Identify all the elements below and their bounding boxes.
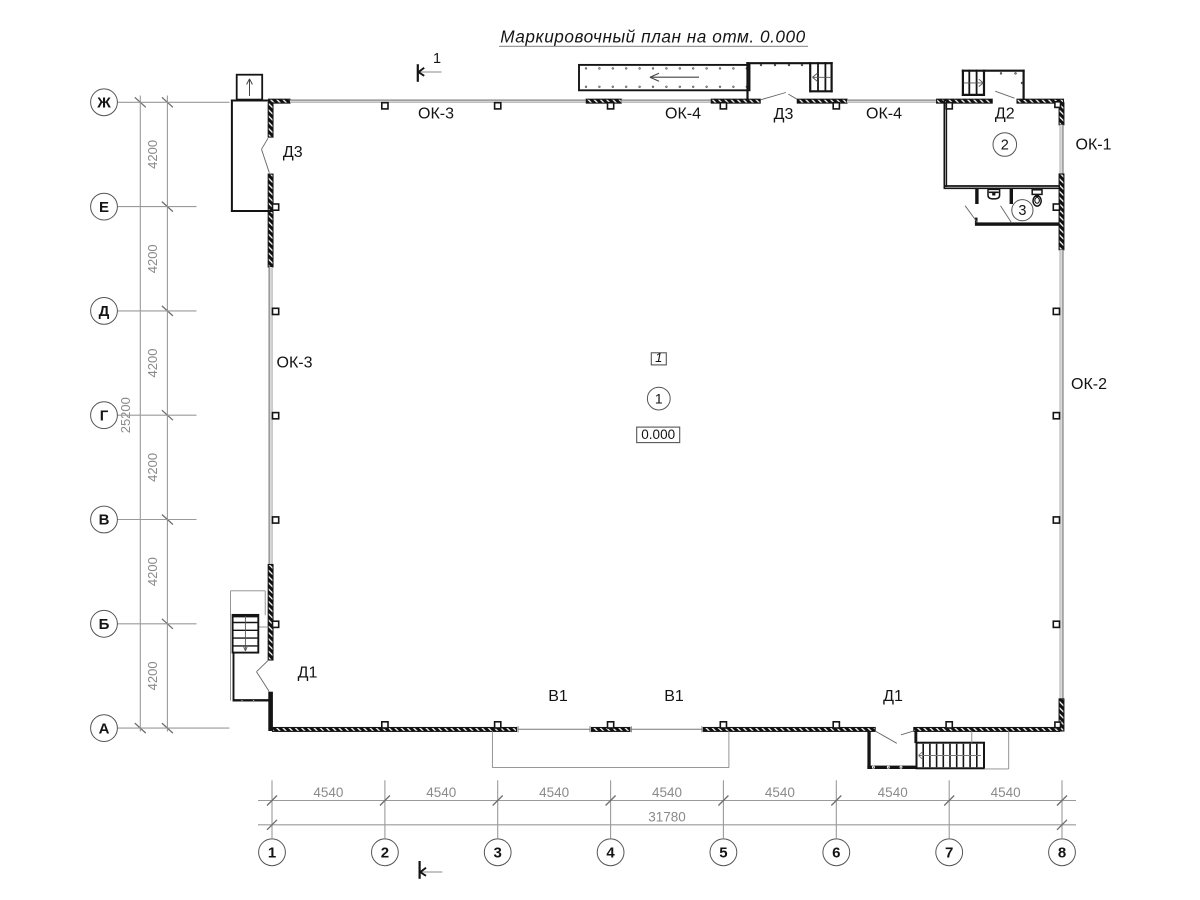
svg-text:Д3: Д3 (774, 106, 794, 123)
svg-text:7: 7 (945, 845, 953, 862)
svg-text:1: 1 (655, 391, 663, 407)
svg-text:А: А (99, 720, 110, 737)
svg-text:ОК-4: ОК-4 (866, 106, 902, 123)
svg-text:В1: В1 (548, 688, 568, 705)
svg-text:4540: 4540 (539, 785, 569, 800)
svg-text:0.000: 0.000 (641, 427, 675, 442)
svg-text:4200: 4200 (145, 244, 160, 273)
svg-text:4540: 4540 (991, 785, 1021, 800)
svg-text:3: 3 (1018, 203, 1026, 219)
svg-text:3: 3 (494, 845, 502, 862)
svg-text:ОК-4: ОК-4 (665, 106, 701, 123)
svg-text:ОК-3: ОК-3 (277, 355, 313, 372)
svg-text:4200: 4200 (145, 140, 160, 169)
svg-text:5: 5 (719, 845, 727, 862)
svg-text:4: 4 (606, 845, 615, 862)
svg-text:31780: 31780 (648, 809, 686, 824)
svg-text:6: 6 (832, 845, 840, 862)
svg-text:4540: 4540 (426, 785, 456, 800)
svg-text:Б: Б (99, 616, 110, 633)
svg-text:Д1: Д1 (298, 664, 318, 681)
svg-text:4200: 4200 (145, 349, 160, 378)
svg-text:4540: 4540 (652, 785, 682, 800)
svg-text:В: В (99, 512, 110, 529)
svg-text:ОК-1: ОК-1 (1076, 137, 1112, 154)
svg-text:Е: Е (99, 199, 109, 216)
svg-text:Ж: Ж (96, 95, 111, 112)
svg-text:1: 1 (655, 350, 662, 365)
svg-text:1: 1 (433, 51, 441, 67)
svg-text:4200: 4200 (145, 557, 160, 586)
svg-text:ОК-3: ОК-3 (418, 106, 454, 123)
svg-text:В1: В1 (664, 688, 684, 705)
svg-text:8: 8 (1058, 845, 1066, 862)
svg-text:Д3: Д3 (283, 144, 303, 161)
svg-text:4540: 4540 (765, 785, 795, 800)
svg-text:ОК-2: ОК-2 (1071, 376, 1107, 393)
svg-text:Г: Г (100, 407, 109, 424)
svg-text:1: 1 (268, 845, 276, 862)
svg-text:Д2: Д2 (995, 105, 1015, 122)
svg-text:Д1: Д1 (883, 688, 903, 705)
svg-text:2: 2 (1001, 138, 1009, 154)
svg-text:4200: 4200 (145, 661, 160, 690)
svg-text:2: 2 (381, 845, 389, 862)
svg-text:Маркировочный план на отм. 0.0: Маркировочный план на отм. 0.000 (500, 27, 806, 47)
svg-text:Д: Д (99, 303, 110, 320)
svg-text:4540: 4540 (313, 785, 343, 800)
svg-text:4200: 4200 (145, 453, 160, 482)
svg-text:4540: 4540 (878, 785, 908, 800)
